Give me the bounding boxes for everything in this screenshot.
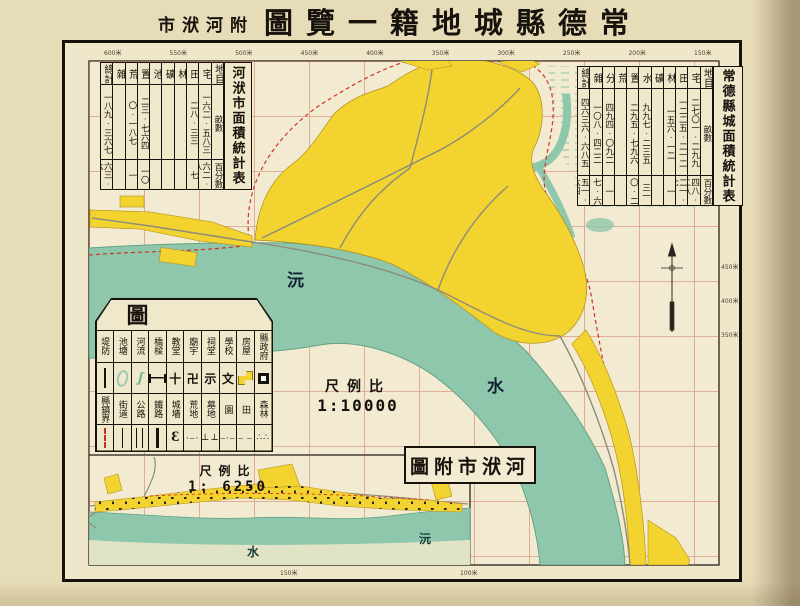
legend-label-cell: 教堂	[167, 331, 185, 362]
inset-river-label-shui: 水	[247, 543, 259, 560]
legend-label: 學校	[223, 337, 232, 355]
table-cell: 四九四·〇九二	[603, 89, 614, 175]
table-column: 置二九五·七九六〇·二	[627, 67, 639, 205]
legend-label-cell: 橋樑	[149, 331, 167, 362]
inset-title: 圖附市洑河	[410, 452, 530, 479]
table-cell: 分	[603, 67, 614, 89]
border-tick: 350米	[721, 330, 738, 339]
table-cell: 七·六	[590, 175, 601, 205]
legend-label: 教堂	[171, 337, 180, 355]
legend-symbol-cell: ʃ	[132, 363, 150, 393]
table-cell: 一二二五·二一二	[676, 89, 687, 175]
river-symbol-icon: ʃ	[136, 369, 144, 387]
table-cell: 總計	[101, 63, 112, 85]
table-cell: 林	[664, 67, 675, 89]
main-scale: 尺例比 1:10000	[298, 376, 418, 415]
legend-label: 縣鎮界	[100, 396, 109, 423]
table-cell: 二七〇一·二九九	[688, 89, 699, 175]
table-cell: 田	[676, 67, 687, 89]
table-cell: 九九七·二三五	[639, 89, 650, 175]
legend-symbol-cell: ·–·	[184, 425, 202, 451]
table-cell: 池	[150, 63, 161, 85]
legend-labels-row-1: 堤防池塘河流橋樑教堂廟宇祠堂學校房屋縣政府	[97, 330, 272, 362]
table-cell: 百分數	[212, 159, 223, 189]
legend-symbols-row-2: Ɛ·–·⊥⊥–·–– –∴∴	[97, 424, 272, 451]
legend-label-cell: 園	[220, 394, 238, 423]
table-cell: 百分數	[701, 175, 712, 205]
legend-label: 園	[223, 405, 232, 414]
table-cell: 雜	[113, 63, 124, 85]
border-tick: 550米	[170, 48, 187, 57]
table-column: 田二八·三三七	[187, 63, 199, 189]
legend-label: 廟宇	[188, 337, 197, 355]
legend-label: 街道	[118, 400, 127, 418]
legend-label-cell: 縣鎮界	[97, 394, 115, 423]
legend-label: 縣政府	[259, 333, 268, 360]
table-column: 宅一六二·五八三六二·八	[199, 63, 211, 189]
table-cell	[615, 175, 626, 205]
table-cell	[175, 159, 186, 189]
table-cell: 地目	[701, 67, 712, 89]
table-column: 雜一〇八·四二二七·六	[590, 67, 602, 205]
legend-symbol-cell: 卍	[184, 363, 202, 393]
rail-symbol-icon	[156, 428, 159, 448]
glyph-symbol-icon: 十	[169, 370, 181, 387]
legend-label-cell: 池塘	[114, 331, 132, 362]
legend-symbol-cell	[149, 425, 167, 451]
table-cell: 六二·八	[199, 159, 210, 189]
table-cell: 置	[138, 63, 149, 85]
table-column: 雜	[113, 63, 125, 189]
inset-scale: 尺例比 1: 6250	[168, 462, 288, 495]
border-tick: 450米	[721, 262, 738, 271]
table-cell: 礦	[652, 67, 663, 89]
legend-title: 例 圖	[97, 300, 272, 330]
bridge-symbol-icon	[149, 374, 166, 383]
table-cell: 畝數	[212, 85, 223, 159]
glyph-symbol-icon: 示	[204, 370, 216, 387]
suburb-patch	[120, 196, 144, 207]
table-cell: 荒	[615, 67, 626, 89]
table-cell: 宅	[688, 67, 699, 89]
table-cell	[162, 159, 173, 189]
table-cell	[652, 175, 663, 205]
table-column: 林	[175, 63, 187, 189]
table-cell: 荒	[126, 63, 137, 85]
gov-symbol-icon	[258, 373, 269, 384]
table-cell	[615, 89, 626, 175]
legend-label: 堤防	[100, 337, 109, 355]
table-cell: 地目	[212, 63, 223, 85]
legend-label-cell: 堤防	[97, 331, 115, 362]
legend-label-cell: 房屋	[237, 331, 255, 362]
table-column: 田一二二五·二一二二一·七	[676, 67, 688, 205]
table-column: 總計四六三六·六八五五一·六四	[578, 67, 590, 205]
legend-label: 城墻	[171, 400, 180, 418]
table-cell: 五一·六四	[578, 175, 589, 205]
table-cell: 七	[187, 159, 198, 189]
table-cell: 一〇	[138, 159, 149, 189]
legend-label-cell: 墓地	[202, 394, 220, 423]
table-column: 水九九七·二三五三一	[639, 67, 651, 205]
table-cell: 一	[603, 175, 614, 205]
legend-label: 森林	[259, 400, 268, 418]
bound-symbol-icon	[104, 428, 106, 448]
table-column: 荒	[615, 67, 627, 205]
legend-symbol-cell: Ɛ	[167, 425, 185, 451]
legend-symbol-cell: 示	[202, 363, 220, 393]
legend-label-cell: 森林	[255, 394, 272, 423]
border-tick: 400米	[721, 296, 738, 305]
legend-symbol-cell	[255, 363, 272, 393]
legend-label: 荒地	[188, 400, 197, 418]
table-cell: 六三·六	[101, 159, 112, 189]
table-cell: 一〇八·四二二	[590, 89, 601, 175]
river-label-shui: 水	[487, 372, 504, 397]
legend-label: 墓地	[206, 400, 215, 418]
table-column: 總計一八九·三六七六三·六	[101, 63, 113, 189]
river-label-yuan: 沅	[287, 266, 304, 291]
border-tick: 150米	[694, 48, 711, 57]
legend-label: 公路	[135, 400, 144, 418]
dots-symbol-icon: –·–	[220, 433, 235, 443]
inset-title-box: 圖附市洑河	[404, 446, 536, 484]
legend-label-cell: 公路	[132, 394, 150, 423]
legend-symbol-cell	[237, 363, 255, 393]
dots-symbol-icon: ·–·	[186, 433, 200, 443]
table-column: 林一五六·一二一	[664, 67, 676, 205]
table-cell: 二九五·七九六	[627, 89, 638, 175]
map-title: 市洑河附 圖覽一籍地城縣德常	[0, 2, 800, 40]
legend-label-cell: 荒地	[184, 394, 202, 423]
main-scale-label: 尺例比	[325, 376, 391, 396]
table-cell: 水	[639, 67, 650, 89]
glyph-symbol-icon: 卍	[187, 370, 199, 387]
map-legend: 例 圖 堤防池塘河流橋樑教堂廟宇祠堂學校房屋縣政府 ʃ十卍示文 縣鎮界街道公路鐵…	[95, 298, 273, 452]
legend-label-cell: 鐵路	[149, 394, 167, 423]
legend-symbol-cell: 文	[220, 363, 238, 393]
table-cell: 一五六·一二	[664, 89, 675, 175]
pond	[586, 218, 614, 232]
legend-symbol-cell: ⊥⊥	[202, 425, 220, 451]
table-cell: 一六二·五八三	[199, 85, 210, 159]
legend-label-cell: 田	[237, 394, 255, 423]
legend-label: 河流	[135, 337, 144, 355]
table-cell	[652, 89, 663, 175]
table-cell: 林	[175, 63, 186, 85]
table-column: 池	[150, 63, 162, 189]
hefu-area-table: 總計一八九·三六七六三·六雜荒〇·一八七一置二三·七六四一〇池礦林田二八·三三七…	[100, 62, 252, 190]
legend-symbol-cell: – –	[237, 425, 255, 451]
legend-label: 池塘	[118, 337, 127, 355]
table-column: 地目畝數百分數	[701, 67, 713, 205]
table-cell: 一	[664, 175, 675, 205]
table-column: 礦	[652, 67, 664, 205]
border-tick: 500米	[235, 48, 252, 57]
table-cell: 總計	[578, 67, 589, 89]
legend-label-cell: 城墻	[167, 394, 185, 423]
border-tick: 150米	[280, 568, 297, 577]
table-cell: 四六三六·六八五	[578, 89, 589, 175]
border-tick: 100米	[460, 568, 477, 577]
dots-symbol-icon: – –	[238, 433, 252, 443]
border-tick: 400米	[366, 48, 383, 57]
legend-symbol-cell	[97, 425, 115, 451]
pond-symbol-icon	[115, 369, 130, 388]
border-tick: 350米	[432, 48, 449, 57]
table-cell	[150, 159, 161, 189]
border-tick: 250米	[563, 48, 580, 57]
table-cell: 宅	[199, 63, 210, 85]
table-cell	[175, 85, 186, 159]
legend-symbol-cell	[97, 363, 115, 393]
changde-table-columns: 總計四六三六·六八五五一·六四雜一〇八·四二二七·六分四九四·〇九二一荒置二九五…	[578, 67, 713, 205]
table-cell: 雜	[590, 67, 601, 89]
table-cell: 〇·二	[627, 175, 638, 205]
legend-symbol-cell: 十	[167, 363, 185, 393]
legend-label-cell: 街道	[114, 394, 132, 423]
table-column: 分四九四·〇九二一	[603, 67, 615, 205]
main-scale-ratio: 1:10000	[317, 396, 398, 415]
legend-label-cell: 縣政府	[255, 331, 272, 362]
map-title-annex: 市洑河附	[158, 11, 254, 36]
legend-label: 鐵路	[153, 400, 162, 418]
legend-label-cell: 廟宇	[184, 331, 202, 362]
street-symbol-icon	[122, 428, 124, 448]
legend-symbol-cell	[149, 363, 167, 393]
table-cell	[150, 85, 161, 159]
dike-symbol-icon	[104, 368, 107, 388]
legend-panel: 例 圖 堤防池塘河流橋樑教堂廟宇祠堂學校房屋縣政府 ʃ十卍示文 縣鎮界街道公路鐵…	[97, 300, 272, 451]
legend-symbols-row-1: ʃ十卍示文	[97, 362, 272, 393]
changde-table-title: 常德縣城面積統計表	[713, 67, 742, 205]
dots-symbol-icon: ∴∴	[256, 432, 269, 443]
legend-label-cell: 祠堂	[202, 331, 220, 362]
border-tick: 300米	[497, 48, 514, 57]
table-cell: 一八九·三六七	[101, 85, 112, 159]
table-cell: 二八·三三	[187, 85, 198, 159]
table-column: 置二三·七六四一〇	[138, 63, 150, 189]
table-column: 荒〇·一八七一	[126, 63, 138, 189]
border-tick: 200米	[628, 48, 645, 57]
legend-symbol-cell	[114, 363, 132, 393]
legend-symbol-cell	[132, 425, 150, 451]
hefu-table-columns: 總計一八九·三六七六三·六雜荒〇·一八七一置二三·七六四一〇池礦林田二八·三三七…	[101, 63, 224, 189]
table-cell: 二三·七六四	[138, 85, 149, 159]
table-cell	[162, 85, 173, 159]
legend-label: 橋樑	[153, 337, 162, 355]
table-cell: 田	[187, 63, 198, 85]
legend-symbol-cell	[114, 425, 132, 451]
inset-scale-ratio: 1: 6250	[188, 479, 268, 495]
legend-labels-row-2: 縣鎮界街道公路鐵路城墻荒地墓地園田森林	[97, 393, 272, 423]
dots-symbol-icon: ⊥⊥	[202, 432, 220, 443]
table-cell: 一	[126, 159, 137, 189]
glyph-symbol-icon: 文	[222, 370, 234, 387]
road-symbol-icon	[136, 428, 143, 448]
table-cell: 三一	[639, 175, 650, 205]
map-title-main: 圖覽一籍地城縣德常	[264, 0, 642, 42]
border-tick: 450米	[301, 48, 318, 57]
legend-label-cell: 學校	[220, 331, 238, 362]
changde-area-table: 總計四六三六·六八五五一·六四雜一〇八·四二二七·六分四九四·〇九二一荒置二九五…	[577, 66, 743, 206]
table-cell: 畝數	[701, 89, 712, 175]
table-column: 地目畝數百分數	[212, 63, 224, 189]
legend-label-cell: 河流	[132, 331, 150, 362]
wall-symbol-icon: Ɛ	[171, 429, 179, 446]
table-cell	[113, 159, 124, 189]
table-column: 宅二七〇一·二九九四八·二八	[688, 67, 700, 205]
legend-label: 田	[241, 405, 250, 414]
inset-river-label-yuan: 沅	[419, 530, 431, 547]
legend-symbol-cell: ∴∴	[255, 425, 272, 451]
inset-scale-label: 尺例比	[199, 462, 256, 479]
legend-label: 祠堂	[206, 337, 215, 355]
table-column: 礦	[162, 63, 174, 189]
house-symbol-icon	[238, 371, 253, 385]
table-cell: 礦	[162, 63, 173, 85]
border-tick: 600米	[104, 48, 121, 57]
table-cell: 置	[627, 67, 638, 89]
table-cell	[113, 85, 124, 159]
hefu-table-title: 河洑市面積統計表	[224, 63, 251, 189]
table-cell: 〇·一八七	[126, 85, 137, 159]
legend-symbol-cell: –·–	[220, 425, 238, 451]
legend-label: 房屋	[241, 337, 250, 355]
table-cell: 四八·二八	[688, 175, 699, 205]
table-cell: 二一·七	[676, 175, 687, 205]
